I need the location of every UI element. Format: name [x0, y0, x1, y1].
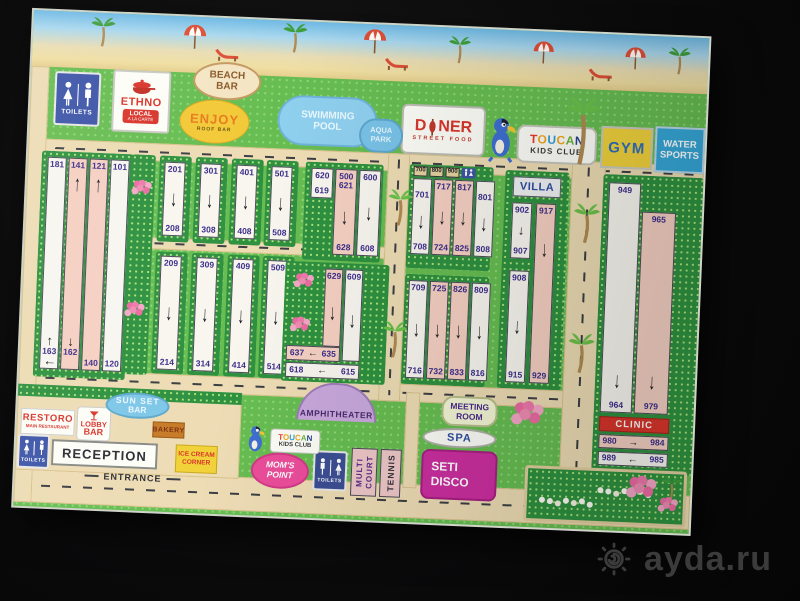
sign-900: 900: [445, 167, 459, 177]
room-strip-637-635: 637 ← 635: [286, 345, 341, 362]
divider: [77, 84, 79, 106]
down-arrow-icon: ↓: [434, 320, 441, 340]
room-number: 201: [168, 165, 183, 175]
down-arrow-icon: ↓: [349, 310, 356, 330]
palm-icon: [573, 203, 601, 244]
room-number: 709: [411, 283, 426, 293]
room-number: 732: [428, 367, 443, 377]
flowers: [634, 483, 645, 494]
down-arrow-icon: ↓: [541, 240, 548, 260]
left-arrow-icon: ←: [308, 349, 318, 358]
down-arrow-icon: ↓: [242, 192, 249, 212]
multi-court-sign: MULTI COURT: [350, 448, 378, 497]
palm-icon: [282, 20, 307, 55]
sun-lounger-icon: [588, 67, 615, 82]
beach-bar-line2: BAR: [216, 81, 238, 93]
beach-umbrella-icon: [362, 29, 387, 56]
beach-bar-line1: BEACH: [209, 69, 245, 81]
room-number: 501: [275, 169, 290, 179]
bakery-sign: BAKERY: [152, 421, 185, 438]
reception-sign: RECEPTION: [51, 439, 158, 469]
left-arrow-icon: ←: [317, 366, 327, 375]
restoro-sub: MAIN RESTAURANT: [26, 424, 70, 431]
woman-icon: [60, 81, 74, 108]
doner-kebab-icon: [427, 118, 438, 135]
ethno-restaurant-sign: ETHNO LOCAL A LA CARTE: [111, 69, 172, 133]
room-number: 965: [651, 215, 666, 225]
right-arrow-icon: →: [628, 438, 638, 447]
room-number: 907: [513, 246, 528, 256]
room-number: 609: [347, 272, 362, 282]
room-number: 635: [321, 349, 336, 359]
amphitheater-label: AMPHITHEATER: [300, 407, 373, 420]
room-number: 724: [434, 243, 449, 253]
palm-icon: [382, 321, 407, 358]
aqua-park: AQUA PARK: [358, 118, 403, 154]
icecream-line2: CORNER: [182, 459, 210, 468]
toilets-sign-middle: TOILETS: [312, 450, 348, 491]
villa-label: VILLA: [520, 181, 555, 194]
room-strip-817-825: 817 ↓ 825: [452, 180, 474, 257]
disco-line2: DISCO: [430, 474, 495, 492]
down-arrow-icon: ↓: [277, 193, 284, 213]
down-arrow-icon: ↓: [170, 189, 177, 209]
palm-icon: [387, 189, 412, 226]
room-strip-809-816: 809 ↓ 816: [468, 283, 491, 382]
room-number: 308: [201, 225, 216, 235]
down-arrow-icon: ↓: [613, 370, 620, 390]
toilets-sign-top: TOILETS: [53, 71, 101, 127]
tennis-label: TENNIS: [385, 455, 397, 493]
room-number: 717: [436, 182, 451, 192]
doner-sub: STREET FOOD: [412, 135, 473, 144]
down-arrow-icon: ↓: [476, 322, 483, 342]
room-strip-621-628: 500 621 ↓ 628: [332, 169, 358, 256]
road-vertical-3: [402, 392, 420, 489]
room-number: 817: [457, 183, 472, 193]
room-number: 637: [290, 348, 305, 358]
watermark-text: ayda.ru: [644, 540, 772, 579]
room-number: 409: [236, 262, 251, 272]
room-number: 826: [453, 285, 468, 295]
room-strip-701-708: 701 ↓ 708: [410, 178, 432, 255]
photo-stage: TOILETS ETHNO LOCAL A LA CARTE BEACH BAR…: [0, 0, 800, 601]
flowers: [663, 502, 670, 509]
room-number: 908: [512, 273, 527, 283]
room-number: 917: [539, 206, 554, 216]
room-number: 120: [104, 359, 119, 369]
down-arrow-icon: ↓: [201, 304, 208, 324]
aqua-line2: PARK: [370, 135, 391, 144]
room-number: 140: [83, 358, 98, 368]
room-number: 209: [164, 259, 179, 269]
room-strip-501-508: 501 ↓ 508: [269, 166, 293, 241]
sun-spiral-icon: [594, 539, 634, 579]
down-arrow-icon: ↓: [480, 213, 487, 233]
down-arrow-icon: ↓: [165, 303, 172, 323]
palm-icon: [668, 45, 691, 78]
down-arrow-icon: ↓: [459, 208, 466, 228]
room-number: 618: [289, 365, 304, 375]
watermark: ayda.ru: [594, 539, 772, 579]
room-number: 949: [618, 186, 633, 196]
room-number: 214: [160, 357, 175, 367]
sign-700: 700: [413, 166, 427, 176]
room-number: 809: [474, 286, 489, 296]
down-arrow-icon: ↓: [518, 225, 525, 237]
flowers: [519, 409, 531, 421]
sign-800: 800: [429, 167, 443, 177]
down-arrow-icon: ↓: [272, 307, 279, 327]
beach-umbrella-icon: [532, 41, 555, 66]
doner-title-right: NER: [438, 118, 473, 137]
multi-court-line1: MULTI: [354, 457, 364, 486]
room-number: 701: [415, 190, 430, 200]
room-number: 816: [470, 368, 485, 378]
room-number: 808: [476, 244, 491, 254]
toilets-sign-reception: TOILETS: [17, 434, 50, 469]
room-number: 508: [272, 228, 287, 238]
room-strip-600-608: 600 ↓ 608: [356, 170, 382, 257]
room-number: 309: [200, 260, 215, 270]
cooking-pot-icon: [127, 79, 158, 96]
pool-line2: POOL: [313, 121, 342, 134]
room-number: 181: [50, 160, 65, 170]
room-box-620-619: 620 619: [310, 168, 333, 199]
lobby-bar-sign: LOBBY BAR: [76, 406, 111, 441]
doner-sign: D NER STREET FOOD: [400, 104, 486, 157]
resort-map-board: TOILETS ETHNO LOCAL A LA CARTE BEACH BAR…: [13, 10, 709, 534]
room-number: 619: [314, 186, 329, 196]
man-icon: [80, 82, 94, 109]
down-arrow-icon: ↓: [648, 372, 655, 392]
room-number: 514: [266, 362, 281, 372]
ethno-subsign: LOCAL A LA CARTE: [123, 109, 159, 125]
room-number: 101: [113, 162, 128, 172]
white-flowers: [539, 497, 545, 503]
room-number: 979: [644, 402, 659, 412]
room-number: 964: [609, 400, 624, 410]
spa-label: SPA: [447, 432, 472, 445]
room-number: 833: [449, 367, 464, 377]
clinic-label: CLINIC: [615, 419, 653, 432]
down-arrow-icon: ↓: [329, 302, 336, 322]
room-number: 414: [232, 360, 247, 370]
down-arrow-icon: ↓: [206, 190, 213, 210]
room-number: 615: [341, 367, 356, 377]
room-number: 629: [327, 272, 342, 282]
palm-icon: [564, 96, 601, 167]
toucan-sub: KIDS CLUB: [279, 442, 312, 450]
room-number: 984: [650, 439, 665, 449]
beach-umbrella-icon: [624, 47, 647, 72]
seti-disco-sign: SETI DISCO: [420, 449, 498, 502]
toilets-label: TOILETS: [21, 457, 46, 464]
room-strip-717-724: 717 ↓ 724: [431, 179, 453, 256]
room-strip-629: 629 ↓: [322, 268, 343, 347]
up-arrow-icon: ↑: [74, 174, 81, 194]
room-number: 980: [602, 437, 617, 447]
gym-sign: GYM: [600, 126, 654, 170]
clinic-banner: CLINIC: [599, 416, 670, 434]
ethno-title: ETHNO: [120, 96, 161, 110]
enjoy-bar-sign: ENJOY ROOF BAR: [179, 98, 251, 145]
white-flowers: [597, 487, 603, 493]
room-number: 628: [336, 243, 351, 253]
room-strip-609: 609 ↓: [342, 269, 364, 362]
sun-lounger-icon: [384, 57, 411, 72]
man-icon: [37, 440, 46, 457]
woman-icon: [333, 458, 343, 477]
room-number: 825: [455, 243, 470, 253]
down-arrow-icon: ↓: [417, 211, 424, 231]
room-number: 985: [649, 456, 664, 466]
enjoy-sub: ROOF BAR: [197, 125, 232, 132]
room-number: 801: [478, 193, 493, 203]
room-strip-902-907: 902 ↓ 907: [510, 202, 532, 259]
room-number: 301: [204, 166, 219, 176]
room-number: 725: [432, 284, 447, 294]
restoro-sign: RESTORO MAIN RESTAURANT: [20, 408, 75, 436]
villa-sign: VILLA: [513, 176, 562, 198]
room-strip-201-208: 201 ↓ 208: [162, 162, 186, 237]
toucan-kids-club-sign-bottom: TOUCAN KIDS CLUB: [270, 428, 321, 454]
room-number: 408: [237, 226, 252, 236]
ethno-sub2: A LA CARTE: [128, 117, 154, 123]
gym-label: GYM: [608, 139, 646, 158]
icecream-corner-sign: ICE CREAM CORNER: [175, 444, 218, 474]
room-number: 620: [315, 171, 330, 181]
multi-court-line2: COURT: [364, 456, 374, 490]
down-arrow-icon: ↓: [439, 207, 446, 227]
entrance-dash: [166, 478, 180, 481]
room-strip-618-615: 618 ← 615: [285, 362, 360, 380]
divider: [329, 459, 331, 475]
room-number: 989: [602, 453, 617, 463]
room-number: 401: [240, 168, 255, 178]
left-arrow-icon: ←: [43, 355, 56, 367]
room-number: 162: [63, 347, 78, 357]
reception-label: RECEPTION: [62, 445, 147, 464]
divider: [33, 441, 35, 455]
woman-icon: [22, 439, 31, 456]
moms-line2: POINT: [267, 470, 293, 481]
water-sports-sign: WATER SPORTS: [654, 126, 706, 174]
down-arrow-icon: ↓: [514, 316, 521, 336]
room-number: 509: [271, 263, 286, 273]
room-number: 708: [413, 242, 428, 252]
meeting-line2: ROOM: [456, 411, 483, 422]
tennis-sign: TENNIS: [379, 449, 402, 498]
man-icon: [317, 457, 327, 476]
room-strip-401-408: 401 ↓ 408: [234, 165, 258, 240]
toilets-label: TOILETS: [317, 477, 342, 484]
room-number: 121: [92, 162, 107, 172]
room-number: 915: [508, 370, 523, 380]
room-number: 716: [407, 366, 422, 376]
spa-sign: SPA: [422, 427, 497, 450]
palm-icon: [90, 14, 115, 49]
sun-lounger-icon: [214, 48, 241, 63]
down-arrow-icon: ↓: [341, 207, 348, 227]
room-strip-980-984: 980 → 984: [598, 434, 669, 451]
down-arrow-icon: ↓: [455, 321, 462, 341]
beach-umbrella-icon: [182, 24, 207, 51]
lobby-line2: BAR: [83, 428, 103, 438]
palm-icon: [661, 474, 682, 503]
toucan-letter: N: [306, 434, 312, 443]
palm-icon: [448, 33, 471, 66]
sunset-line2: BAR: [128, 405, 147, 415]
left-arrow-icon: ←: [628, 455, 638, 464]
room-number: 141: [71, 161, 86, 171]
doner-title-left: D: [414, 117, 426, 135]
up-arrow-icon: ↑: [95, 175, 102, 195]
room-strip-301-308: 301 ↓ 308: [198, 163, 222, 238]
palm-icon: [567, 333, 595, 374]
down-arrow-icon: ↓: [413, 319, 420, 339]
water-sports-line2: SPORTS: [660, 149, 700, 162]
flower-bed: [523, 465, 687, 528]
down-arrow-icon: ↓: [365, 203, 372, 223]
bakery-label: BAKERY: [152, 426, 185, 434]
toilets-label: TOILETS: [61, 108, 92, 116]
room-number: 621: [339, 181, 354, 191]
room-number: 608: [360, 244, 375, 254]
room-number: 929: [532, 371, 547, 381]
toucan-mascot: [244, 423, 269, 456]
toilets-mini-icon: [461, 168, 475, 178]
meeting-room-sign: MEETING ROOM: [441, 395, 498, 427]
room-strip-989-985: 989 ← 985: [597, 451, 668, 468]
toucan-mascot: [486, 113, 518, 164]
room-number: 208: [165, 223, 180, 233]
entrance-dash: [85, 475, 99, 478]
room-strip-801-808: 801 ↓ 808: [473, 181, 495, 258]
down-arrow-icon: ↓: [237, 306, 244, 326]
room-number: 600: [363, 173, 378, 183]
room-number: 314: [196, 359, 211, 369]
room-number: 902: [515, 205, 530, 215]
